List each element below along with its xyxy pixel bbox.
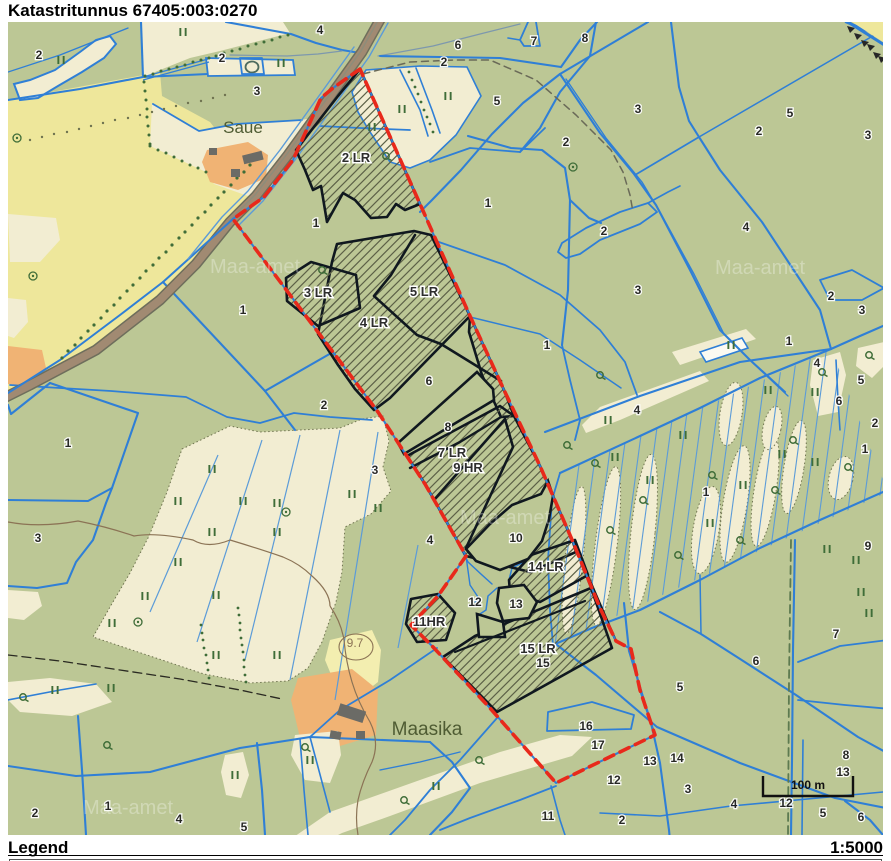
svg-text:4 LR: 4 LR: [360, 315, 389, 330]
svg-text:4: 4: [731, 797, 738, 811]
svg-text:2: 2: [36, 48, 43, 62]
svg-text:Maa-amet: Maa-amet: [715, 257, 805, 279]
svg-text:Maa-amet: Maa-amet: [210, 256, 300, 278]
svg-text:12: 12: [468, 595, 482, 609]
svg-text:1: 1: [862, 442, 869, 456]
svg-text:1: 1: [544, 338, 551, 352]
svg-text:6: 6: [836, 394, 843, 408]
svg-text:4: 4: [176, 812, 183, 826]
svg-text:10: 10: [509, 531, 523, 545]
svg-text:Maa-amet: Maa-amet: [460, 507, 550, 529]
svg-text:5: 5: [494, 94, 501, 108]
svg-text:5: 5: [677, 680, 684, 694]
svg-text:9 HR: 9 HR: [453, 460, 483, 475]
svg-text:3: 3: [859, 303, 866, 317]
svg-text:3: 3: [635, 102, 642, 116]
svg-text:2: 2: [872, 416, 879, 430]
svg-text:2: 2: [321, 398, 328, 412]
svg-text:3: 3: [372, 463, 379, 477]
svg-text:5: 5: [858, 373, 865, 387]
svg-text:2: 2: [756, 124, 763, 138]
svg-text:3: 3: [685, 782, 692, 796]
svg-text:2: 2: [32, 806, 39, 820]
svg-text:16: 16: [579, 719, 593, 733]
svg-text:7 LR: 7 LR: [438, 445, 467, 460]
svg-text:2: 2: [619, 813, 626, 827]
svg-text:4: 4: [634, 403, 641, 417]
svg-text:8: 8: [445, 420, 452, 434]
svg-text:5: 5: [787, 106, 794, 120]
svg-text:5 LR: 5 LR: [410, 284, 439, 299]
svg-text:5: 5: [820, 806, 827, 820]
svg-text:3: 3: [35, 531, 42, 545]
svg-text:2: 2: [563, 135, 570, 149]
svg-text:4: 4: [743, 220, 750, 234]
svg-text:8: 8: [582, 31, 589, 45]
svg-text:2: 2: [441, 55, 448, 69]
svg-text:2: 2: [828, 289, 835, 303]
svg-text:2: 2: [219, 51, 226, 65]
svg-text:1: 1: [105, 799, 112, 813]
svg-text:6: 6: [858, 810, 865, 824]
svg-text:6: 6: [753, 654, 760, 668]
svg-text:4: 4: [427, 533, 434, 547]
svg-text:2 LR: 2 LR: [342, 150, 371, 165]
svg-text:3: 3: [254, 84, 261, 98]
svg-text:5: 5: [241, 820, 248, 834]
svg-text:15 LR: 15 LR: [520, 641, 556, 656]
svg-text:6: 6: [455, 38, 462, 52]
svg-text:8: 8: [843, 748, 850, 762]
svg-text:14: 14: [670, 751, 684, 765]
svg-text:13: 13: [509, 597, 523, 611]
svg-text:1: 1: [485, 196, 492, 210]
svg-text:1: 1: [313, 216, 320, 230]
svg-text:1: 1: [65, 436, 72, 450]
svg-text:11HR: 11HR: [413, 614, 446, 629]
svg-text:15: 15: [536, 656, 550, 670]
svg-text:12: 12: [779, 796, 793, 810]
svg-text:1: 1: [786, 334, 793, 348]
svg-text:17: 17: [591, 738, 605, 752]
svg-text:7: 7: [833, 627, 840, 641]
svg-text:7: 7: [531, 34, 538, 48]
svg-text:3: 3: [635, 283, 642, 297]
svg-text:6: 6: [426, 374, 433, 388]
svg-text:Maa-amet: Maa-amet: [83, 797, 173, 819]
svg-text:1: 1: [703, 485, 710, 499]
svg-text:Saue: Saue: [223, 118, 263, 137]
svg-text:100 m: 100 m: [791, 778, 825, 792]
svg-text:12: 12: [607, 773, 621, 787]
svg-text:Maasika: Maasika: [392, 719, 463, 740]
svg-text:3 LR: 3 LR: [304, 285, 333, 300]
svg-text:11: 11: [542, 809, 555, 823]
svg-text:13: 13: [643, 754, 657, 768]
svg-text:3: 3: [865, 128, 872, 142]
svg-text:4: 4: [814, 356, 821, 370]
svg-text:14 LR: 14 LR: [528, 559, 564, 574]
svg-text:13: 13: [836, 765, 850, 779]
svg-text:9.7: 9.7: [347, 636, 364, 650]
svg-text:4: 4: [317, 23, 324, 37]
svg-text:1: 1: [240, 303, 247, 317]
svg-text:9: 9: [865, 539, 872, 553]
svg-text:2: 2: [601, 224, 608, 238]
